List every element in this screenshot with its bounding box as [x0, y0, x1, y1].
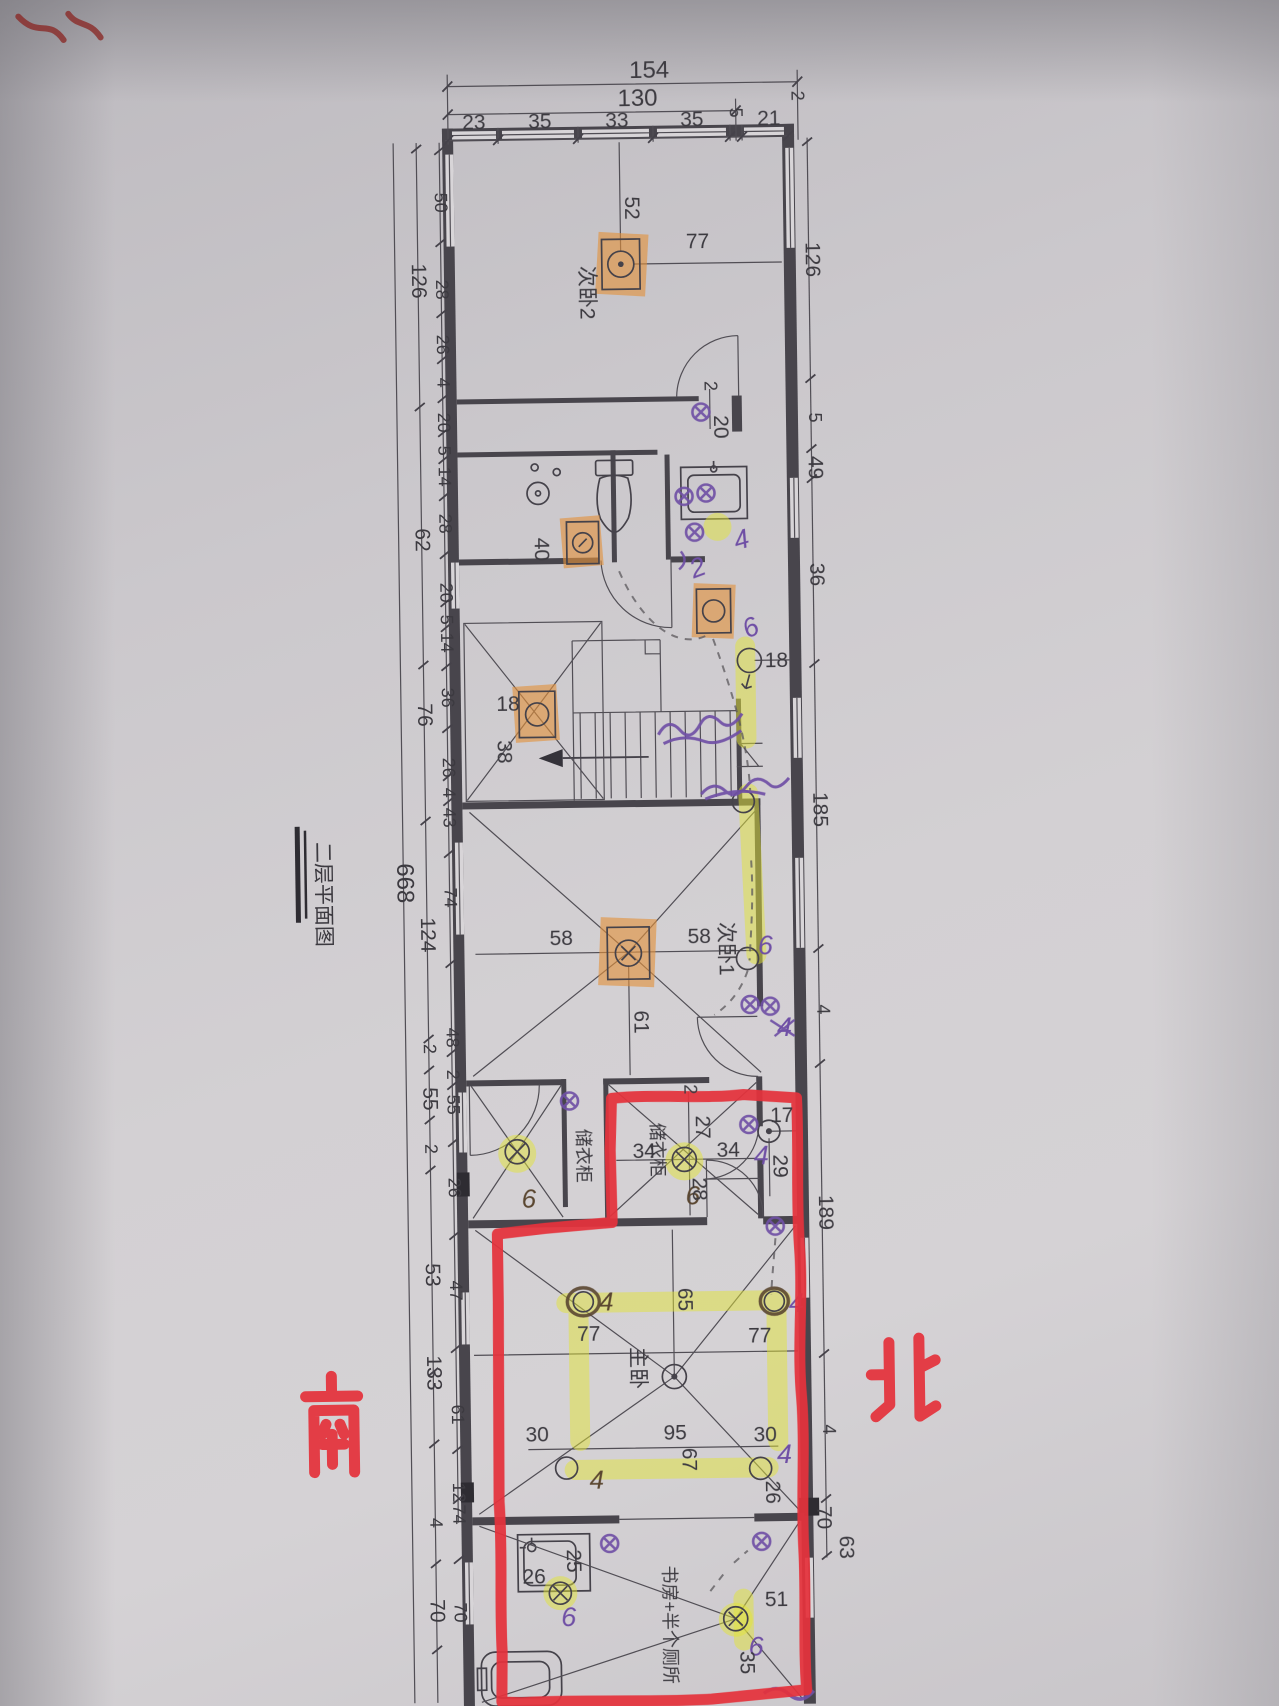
- pen-number: 4: [777, 1439, 792, 1469]
- dim: 30: [525, 1423, 549, 1446]
- compass-south: 南: [305, 1376, 358, 1473]
- dim: 55: [418, 1087, 441, 1111]
- pen-number: 2: [684, 551, 710, 585]
- dim: 2: [443, 1069, 463, 1079]
- room-label-study: 书房+半个厕所: [659, 1565, 681, 1684]
- dim: 70: [450, 1602, 470, 1622]
- pen-annotations: 4 4 4 4 4 6 6 6 6 6 6 2 4 4: [511, 402, 814, 1703]
- room-label-wardrobe-left: 储衣柜: [573, 1129, 594, 1183]
- dim: 77: [577, 1323, 601, 1346]
- dim: 25: [562, 1549, 585, 1573]
- red-corner-scribble: [18, 13, 100, 40]
- dim: 77: [686, 230, 710, 253]
- dim: 63: [835, 1535, 858, 1559]
- dim: 52: [620, 196, 643, 220]
- dim: 55: [443, 1094, 463, 1114]
- dim: 62: [410, 528, 433, 552]
- pen-number: 6: [758, 930, 774, 960]
- dim: 2: [787, 91, 807, 101]
- dim: 189: [814, 1195, 837, 1230]
- dim: 74: [449, 1504, 469, 1524]
- pen-number: 6: [561, 1602, 577, 1632]
- dim: 33: [605, 109, 629, 132]
- room-label-bedroom1: 次卧1: [714, 922, 738, 976]
- dim: 53: [421, 1263, 444, 1287]
- dim: 36: [805, 563, 828, 587]
- dim: 26: [439, 758, 459, 778]
- pen-number: 4: [754, 1140, 769, 1170]
- dim: 43: [439, 808, 459, 828]
- dim: 133: [422, 1355, 445, 1390]
- dim: 34: [716, 1139, 740, 1162]
- stair-direction-arrow: [539, 749, 563, 767]
- dim: 70: [425, 1599, 448, 1623]
- pen-number: 4: [777, 1012, 792, 1042]
- dim: 28: [432, 280, 452, 300]
- dim: 35: [528, 110, 552, 133]
- dim: 40: [530, 538, 553, 562]
- dim: 17: [770, 1104, 794, 1127]
- dim: 26: [522, 1565, 546, 1588]
- dim: 5: [434, 446, 454, 456]
- dim: 2: [700, 381, 720, 391]
- dim: 23: [462, 111, 486, 134]
- dim: 48: [442, 1027, 462, 1047]
- dim: 65: [673, 1288, 696, 1312]
- dim: 124: [416, 917, 439, 953]
- dim: 38: [492, 740, 515, 764]
- dim: 77: [748, 1324, 772, 1347]
- dim: 14: [437, 633, 457, 653]
- dim: 74: [441, 887, 461, 907]
- pen-number: 6: [521, 1183, 536, 1213]
- dim: 47: [446, 1280, 466, 1300]
- dim: 67: [677, 1448, 700, 1472]
- floor-plan-photo: 4 4 4 4 4 6 6 6 6 6 6 2 4 4 南 北 154 130: [0, 0, 1279, 1706]
- compass-north-label: 北: [901, 1387, 911, 1399]
- dim: 4: [433, 378, 453, 388]
- pen-number: 4: [730, 523, 753, 556]
- dim: 51: [765, 1588, 789, 1611]
- dim: 35: [680, 108, 704, 131]
- dim: 2: [680, 1084, 700, 1094]
- dim: 28: [688, 1177, 711, 1201]
- dim: 12: [449, 1482, 469, 1502]
- dim: 130: [617, 85, 657, 113]
- dim: 26: [761, 1480, 784, 1504]
- dim: 27: [691, 1115, 714, 1139]
- dim: 29: [768, 1154, 791, 1178]
- dim: 95: [663, 1421, 687, 1444]
- dim: 18: [765, 649, 789, 672]
- dim: 4: [813, 1004, 833, 1014]
- dim: 5: [726, 107, 746, 117]
- dim: 4: [819, 1424, 839, 1434]
- floor-plan-drawing: 4 4 4 4 4 6 6 6 6 6 6 2 4 4 南 北 154 130: [0, 0, 1279, 1706]
- dim: 30: [753, 1423, 777, 1446]
- room-label-bedroom2: 次卧2: [575, 266, 599, 320]
- dim: 35: [735, 1651, 758, 1675]
- dim: 5: [805, 412, 825, 422]
- dim: 4: [426, 1518, 446, 1528]
- dim: 26: [433, 335, 453, 355]
- dim: 50: [431, 193, 451, 213]
- dim: 20: [436, 583, 456, 603]
- dim: 4: [439, 788, 459, 798]
- dim: 28: [435, 514, 455, 534]
- dim: 5: [437, 615, 457, 625]
- dim: 70: [812, 1506, 835, 1530]
- dim: 20: [434, 413, 454, 433]
- title-block: 二层平面图: [295, 826, 336, 947]
- dim-overall: 668: [391, 863, 419, 903]
- dim: 61: [629, 1010, 652, 1034]
- dim: 20: [709, 415, 732, 439]
- dim: 26: [445, 1177, 465, 1197]
- dim: 61: [448, 1404, 468, 1424]
- pen-number: 4: [589, 1465, 604, 1495]
- dim: 2: [420, 1044, 440, 1054]
- pen-number: 4: [599, 1286, 614, 1316]
- dim: 18: [496, 693, 520, 716]
- drawing-title: 二层平面图: [311, 842, 335, 947]
- dim: 76: [413, 703, 436, 727]
- dim: 58: [549, 927, 573, 950]
- dim: 36: [438, 688, 458, 708]
- dim: 58: [687, 925, 711, 948]
- title-underline-thick: [295, 827, 301, 923]
- dim: 49: [804, 456, 827, 480]
- dim: 14: [435, 467, 455, 487]
- dim: 126: [801, 242, 824, 277]
- compass-south-label: 南: [327, 1434, 337, 1447]
- dim: 185: [808, 792, 831, 827]
- title-underline-thin: [304, 831, 308, 919]
- compass-north: 北: [871, 1338, 936, 1417]
- dim-total: 154: [629, 57, 669, 85]
- dim: 126: [407, 263, 430, 298]
- dim: 21: [757, 107, 781, 130]
- room-label-master: 主卧: [626, 1347, 650, 1389]
- dim: 2: [421, 1144, 441, 1154]
- shower-head-icon: [527, 482, 549, 504]
- room-label-wardrobe-right: 储衣柜: [647, 1123, 668, 1177]
